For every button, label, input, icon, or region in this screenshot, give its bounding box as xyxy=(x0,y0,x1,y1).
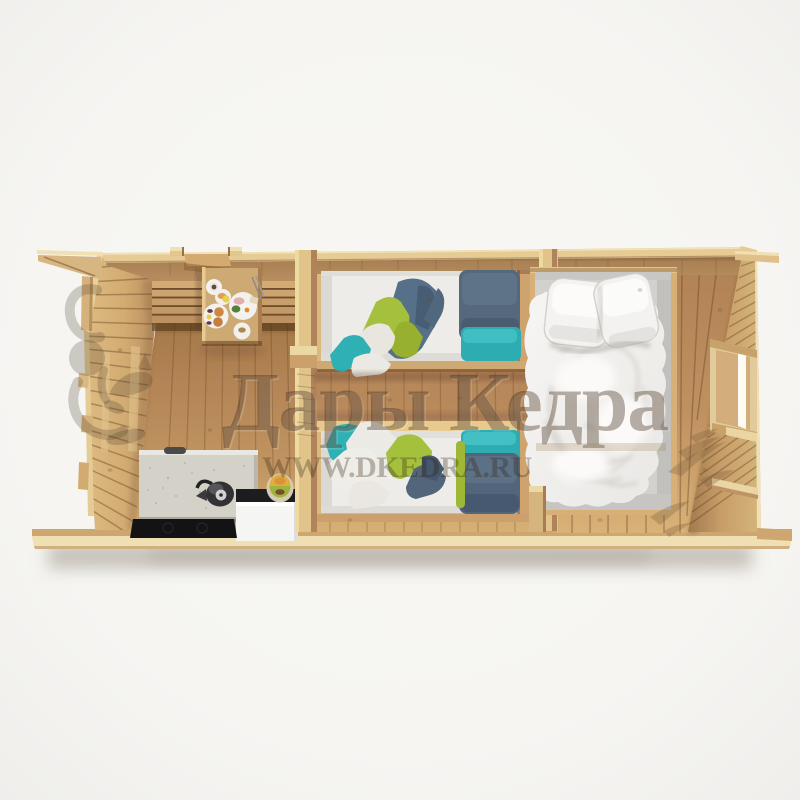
svg-text:Дары Кедра: Дары Кедра xyxy=(222,356,668,449)
svg-text:WWW.DKEDRA.RU: WWW.DKEDRA.RU xyxy=(262,451,532,484)
